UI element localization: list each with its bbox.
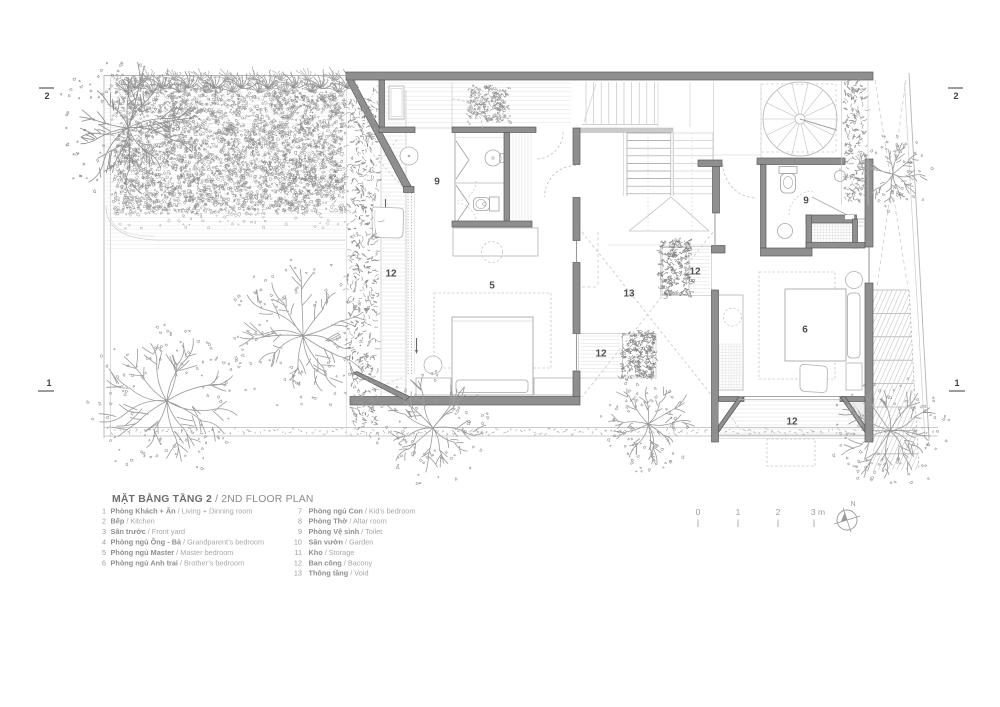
svg-text:Phòng ngủ Con / Kid’s bedroom: Phòng ngủ Con / Kid’s bedroom [309, 506, 416, 515]
svg-text:Kho / Storage: Kho / Storage [309, 548, 355, 557]
svg-text:Phòng Vệ sinh / Toilet: Phòng Vệ sinh / Toilet [309, 527, 383, 536]
svg-text:Sân vườn / Garden: Sân vườn / Garden [309, 538, 374, 547]
svg-text:9: 9 [298, 527, 302, 536]
svg-text:5: 5 [489, 281, 495, 292]
svg-text:12: 12 [385, 269, 397, 280]
svg-text:MẶT BẰNG TẦNG 2 / 2ND FLOOR PL: MẶT BẰNG TẦNG 2 / 2ND FLOOR PLAN [112, 492, 314, 505]
svg-text:Ban công / Bacony: Ban công / Bacony [309, 558, 373, 567]
svg-text:Phòng ngủ Ông - Bà / Grandpare: Phòng ngủ Ông - Bà / Grandparent’s bedro… [111, 538, 265, 547]
svg-text:Bếp / Kitchen: Bếp / Kitchen [111, 517, 155, 526]
svg-text:9: 9 [434, 177, 440, 188]
svg-text:2: 2 [776, 507, 781, 517]
svg-text:12: 12 [294, 558, 302, 567]
svg-text:12: 12 [786, 417, 798, 428]
svg-text:12: 12 [689, 267, 701, 278]
svg-text:3 m: 3 m [811, 507, 825, 517]
svg-text:9: 9 [803, 196, 809, 207]
svg-text:2: 2 [953, 91, 958, 101]
svg-text:11: 11 [294, 548, 302, 557]
svg-text:2: 2 [44, 91, 49, 101]
svg-text:13: 13 [623, 289, 635, 300]
svg-text:7: 7 [298, 506, 302, 515]
svg-text:Sân trước / Front yard: Sân trước / Front yard [111, 527, 186, 536]
svg-text:12: 12 [595, 349, 607, 360]
svg-text:Phòng ngủ Master / Master bedr: Phòng ngủ Master / Master bedroom [111, 548, 234, 557]
svg-text:13: 13 [294, 569, 302, 578]
svg-text:0: 0 [696, 507, 701, 517]
svg-text:10: 10 [294, 538, 302, 547]
svg-text:Phòng Khách + Ăn / Living + Di: Phòng Khách + Ăn / Living + Dinning room [111, 506, 253, 515]
svg-text:Phòng Thờ / Altar room: Phòng Thờ / Altar room [309, 517, 387, 526]
svg-text:Phòng ngủ Anh trai / Brother’s: Phòng ngủ Anh trai / Brother’s bedroom [111, 558, 245, 567]
svg-text:8: 8 [298, 517, 302, 526]
svg-text:3: 3 [102, 527, 106, 536]
svg-text:N: N [850, 501, 855, 508]
svg-text:1: 1 [102, 506, 106, 515]
svg-text:1: 1 [736, 507, 741, 517]
svg-text:5: 5 [102, 548, 106, 557]
svg-text:1: 1 [46, 378, 51, 388]
svg-text:2: 2 [102, 517, 106, 526]
svg-text:6: 6 [802, 325, 808, 336]
svg-text:1: 1 [954, 378, 959, 388]
svg-text:Thông tầng / Void: Thông tầng / Void [309, 569, 369, 578]
svg-text:6: 6 [102, 558, 106, 567]
svg-text:4: 4 [102, 538, 106, 547]
